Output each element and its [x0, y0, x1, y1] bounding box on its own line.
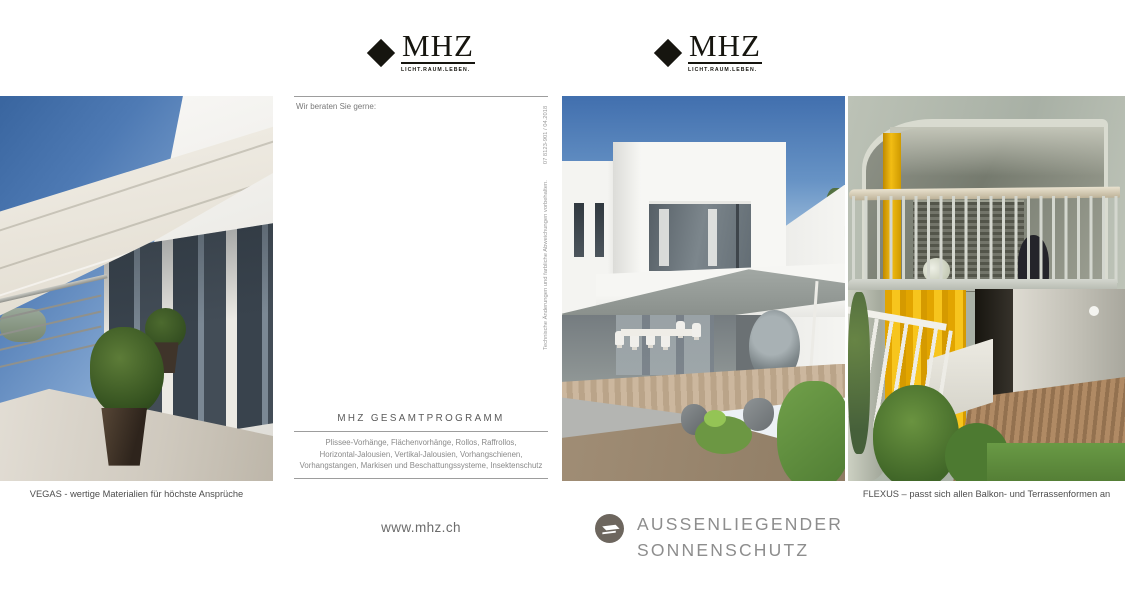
- cover-title-line2: SONNENSCHUTZ: [637, 537, 843, 563]
- contact-heading: Wir beraten Sie gerne:: [296, 102, 376, 111]
- program-title: MHZ GESAMTPROGRAMM: [294, 413, 548, 424]
- dining-chairs: [613, 314, 709, 360]
- grass-patch: [704, 410, 727, 427]
- print-note-text: Technische Änderungen und farbliche Abwe…: [543, 180, 549, 350]
- logo-text: MHZ LICHT.RAUM.LEBEN.: [401, 33, 475, 73]
- curtain: [659, 209, 668, 266]
- brand-name: MHZ: [688, 33, 762, 64]
- brand-name: MHZ: [401, 33, 475, 64]
- photo-flexus-balcony: [848, 96, 1125, 481]
- corner-window: [649, 201, 751, 272]
- window: [574, 203, 584, 257]
- mhz-logo: MHZ LICHT.RAUM.LEBEN.: [366, 33, 475, 73]
- photo-vegas-terrace: [0, 96, 273, 481]
- program-line: Horizontal-Jalousien, Vertikal-Jalousien…: [294, 449, 548, 461]
- photo-modern-house: [562, 96, 845, 481]
- shrub: [90, 327, 164, 416]
- program-list: Plissee-Vorhänge, Flächenvorhänge, Rollo…: [294, 431, 548, 479]
- logo-text: MHZ LICHT.RAUM.LEBEN.: [688, 33, 762, 73]
- caption-vegas: VEGAS - wertige Materialien für höchste …: [0, 489, 273, 499]
- brand-tagline: LICHT.RAUM.LEBEN.: [401, 67, 475, 73]
- product-program: MHZ GESAMTPROGRAMM Plissee-Vorhänge, Flä…: [294, 413, 548, 479]
- railing-bars: [852, 196, 1119, 283]
- balcony-ceiling: [890, 127, 1104, 176]
- program-line: Plissee-Vorhänge, Flächenvorhänge, Rollo…: [294, 437, 548, 449]
- divider: [294, 96, 548, 97]
- cover-title-line1: AUSSENLIEGENDER: [637, 511, 843, 537]
- chair: [692, 323, 701, 337]
- print-note: Technische Änderungen und farbliche Abwe…: [543, 106, 549, 350]
- window: [595, 203, 605, 257]
- caption-flexus: FLEXUS – passt sich allen Balkon- und Te…: [848, 489, 1125, 499]
- brochure-spread: MHZ LICHT.RAUM.LEBEN. MHZ LICHT.RAUM.LEB…: [0, 0, 1125, 595]
- garden-greenery: [848, 292, 870, 454]
- cover-title-block: AUSSENLIEGENDER SONNENSCHUTZ: [595, 511, 843, 563]
- wall-lamp: [1089, 306, 1099, 316]
- mhz-logo: MHZ LICHT.RAUM.LEBEN.: [653, 33, 762, 73]
- cover-title: AUSSENLIEGENDER SONNENSCHUTZ: [637, 511, 843, 563]
- dining-table: [621, 329, 692, 336]
- website-url[interactable]: www.mhz.ch: [294, 520, 548, 535]
- program-line: Vorhangstangen, Markisen und Beschattung…: [294, 460, 548, 472]
- brand-tagline: LICHT.RAUM.LEBEN.: [688, 67, 762, 73]
- print-note-code: 07 8123-901 / 04.2018: [543, 106, 549, 164]
- grass-patch: [777, 381, 845, 481]
- awning-icon: [595, 511, 624, 543]
- curtain: [708, 209, 717, 266]
- lawn: [987, 443, 1125, 482]
- diamond-logo-icon: [654, 39, 682, 67]
- diamond-logo-icon: [367, 39, 395, 67]
- window-frame: [736, 204, 739, 272]
